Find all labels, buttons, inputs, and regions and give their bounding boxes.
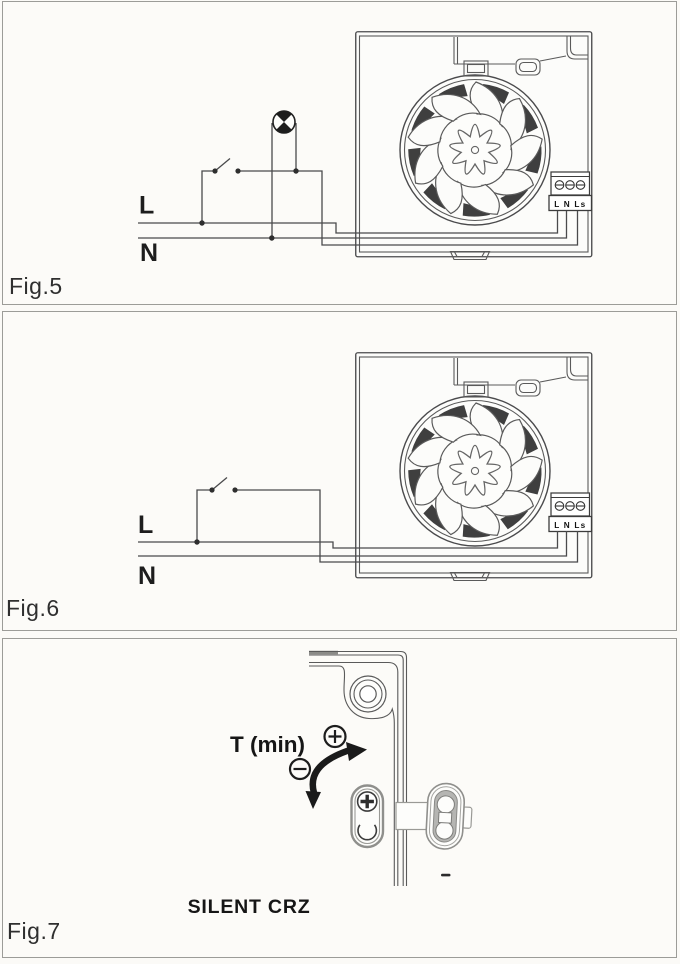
diagram-canvas: L N Ls L N — [0, 0, 680, 964]
mounting-hole-icon — [350, 676, 386, 712]
terminal-connector — [425, 783, 473, 851]
fig6-live-label: L — [138, 511, 153, 539]
fig7-adjustment-label: T (min) — [230, 732, 305, 757]
fig5-caption: Fig.5 — [9, 273, 63, 300]
fig7-adjustment-detail: T (min) SILENT CRZ — [188, 652, 474, 919]
fig5-neutral-label: N — [140, 239, 158, 267]
fig5-switch-feed-wire — [202, 171, 215, 223]
fig6-wiring-diagram: L N — [138, 353, 592, 590]
fig5-wiring-diagram: L N — [138, 32, 592, 267]
housing-corner — [309, 652, 407, 887]
minus-circle-icon — [290, 759, 310, 779]
fig5-live-label: L — [139, 192, 154, 220]
fig7-caption: Fig.7 — [7, 918, 61, 945]
phillips-screw-icon — [358, 792, 377, 811]
switch-icon — [209, 478, 237, 493]
fig7-product-name: SILENT CRZ — [188, 896, 311, 918]
junction-dot — [194, 539, 199, 544]
fig6-neutral-label: N — [138, 562, 156, 590]
junction-dot — [199, 220, 204, 225]
minus-mark — [441, 874, 451, 877]
junction-dot — [269, 235, 274, 240]
junction-dot — [293, 168, 298, 173]
fig6-caption: Fig.6 — [6, 595, 60, 622]
fig6-switch-feed-wire — [197, 490, 212, 542]
timer-adjust-screw — [352, 786, 384, 848]
switch-icon — [212, 159, 240, 174]
plus-circle-icon — [325, 726, 346, 747]
connector-bracket — [396, 803, 428, 830]
manual-page: L N Ls L N — [0, 0, 680, 964]
lamp-icon — [273, 111, 295, 133]
